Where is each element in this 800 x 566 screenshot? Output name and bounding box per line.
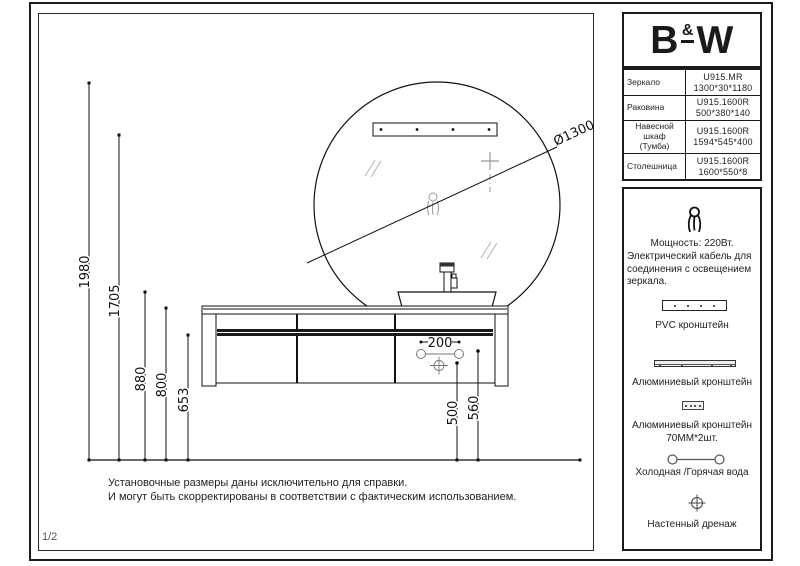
power-text-line2: соединения с освещением bbox=[627, 264, 758, 277]
power-text-line1: Электрический кабель для bbox=[627, 251, 758, 264]
logo-letter-w: W bbox=[696, 21, 733, 60]
cabinet-aluminium-strip bbox=[217, 329, 493, 336]
installation-note: Установочные размеры даны исключительно … bbox=[108, 476, 516, 504]
aluminium-bracket-icon bbox=[654, 360, 736, 367]
cabinet-side-left bbox=[202, 306, 216, 386]
power-cable-icon bbox=[684, 205, 705, 235]
spec-value: U915.MR 1300*30*1180 bbox=[686, 70, 760, 95]
spec-label: Раковина bbox=[624, 96, 686, 120]
spec-value: U915.1600R 500*380*140 bbox=[686, 96, 760, 120]
spec-row-countertop: Столешница U915.1600R 1600*550*8 bbox=[624, 154, 760, 179]
note-line1: Установочные размеры даны исключительно … bbox=[108, 476, 516, 490]
spec-label: Столешница bbox=[624, 154, 686, 179]
spec-label: Навесной шкаф (Тумба) bbox=[624, 121, 686, 153]
mirror-circle bbox=[314, 82, 560, 328]
spec-row-cabinet: Навесной шкаф (Тумба) U915.1600R 1594*54… bbox=[624, 121, 760, 154]
drawing-sheet: Ø1300 bbox=[0, 0, 800, 566]
sink-bowl bbox=[398, 292, 496, 307]
spec-row-sink: Раковина U915.1600R 500*380*140 bbox=[624, 96, 760, 121]
spec-label: Зеркало bbox=[624, 70, 686, 95]
vanity-cabinet bbox=[202, 306, 508, 386]
aluminium-bracket-small-icon bbox=[682, 401, 704, 410]
spec-value: U915.1600R 1600*550*8 bbox=[686, 154, 760, 179]
water-label: Холодная /Горячая вода bbox=[624, 467, 760, 478]
diameter-label: Ø1300 bbox=[551, 118, 597, 150]
drain-label: Настенный дренаж bbox=[624, 519, 760, 530]
page-number: 1/2 bbox=[42, 531, 57, 543]
aluminium-bracket2-qty: 70ММ*2шт. bbox=[624, 433, 760, 444]
dim-label-800: 800 bbox=[155, 373, 170, 398]
power-title: Мощность: 220Вт. bbox=[624, 238, 760, 249]
mirror-mount-bar bbox=[373, 123, 497, 136]
dim-label-560: 560 bbox=[467, 396, 482, 421]
dim-label-1980: 1980 bbox=[78, 255, 93, 288]
pvc-bracket-label: PVC кронштейн bbox=[624, 320, 760, 331]
pvc-bracket-icon bbox=[662, 300, 727, 311]
cabinet-body bbox=[216, 314, 495, 383]
spec-value: U915.1600R 1594*545*400 bbox=[686, 121, 760, 153]
power-text-line3: зеркала. bbox=[627, 276, 758, 289]
legend-panel: Мощность: 220Вт. Электрический кабель дл… bbox=[622, 187, 762, 551]
wall-drain-icon bbox=[688, 494, 706, 512]
spec-table: Зеркало U915.MR 1300*30*1180 Раковина U9… bbox=[622, 68, 762, 181]
logo-letter-b: B bbox=[650, 21, 679, 60]
dim-label-500: 500 bbox=[446, 401, 461, 426]
dim-label-880: 880 bbox=[134, 367, 149, 392]
aluminium-bracket-label: Алюминиевый кронштейн bbox=[624, 377, 760, 388]
dim-label-653: 653 bbox=[177, 388, 192, 413]
cabinet-side-right bbox=[495, 306, 508, 386]
dim-label-1705: 1705 bbox=[108, 284, 123, 317]
note-line2: И могут быть скорректированы в соответст… bbox=[108, 490, 516, 504]
countertop bbox=[202, 306, 508, 314]
brand-logo: B & W bbox=[622, 12, 762, 68]
dim-label-200: 200 bbox=[428, 336, 453, 351]
spec-row-mirror: Зеркало U915.MR 1300*30*1180 bbox=[624, 70, 760, 96]
cold-hot-water-icon bbox=[666, 453, 726, 466]
aluminium-bracket2-label: Алюминиевый кронштейн bbox=[624, 420, 760, 431]
logo-ampersand: & bbox=[681, 23, 695, 43]
